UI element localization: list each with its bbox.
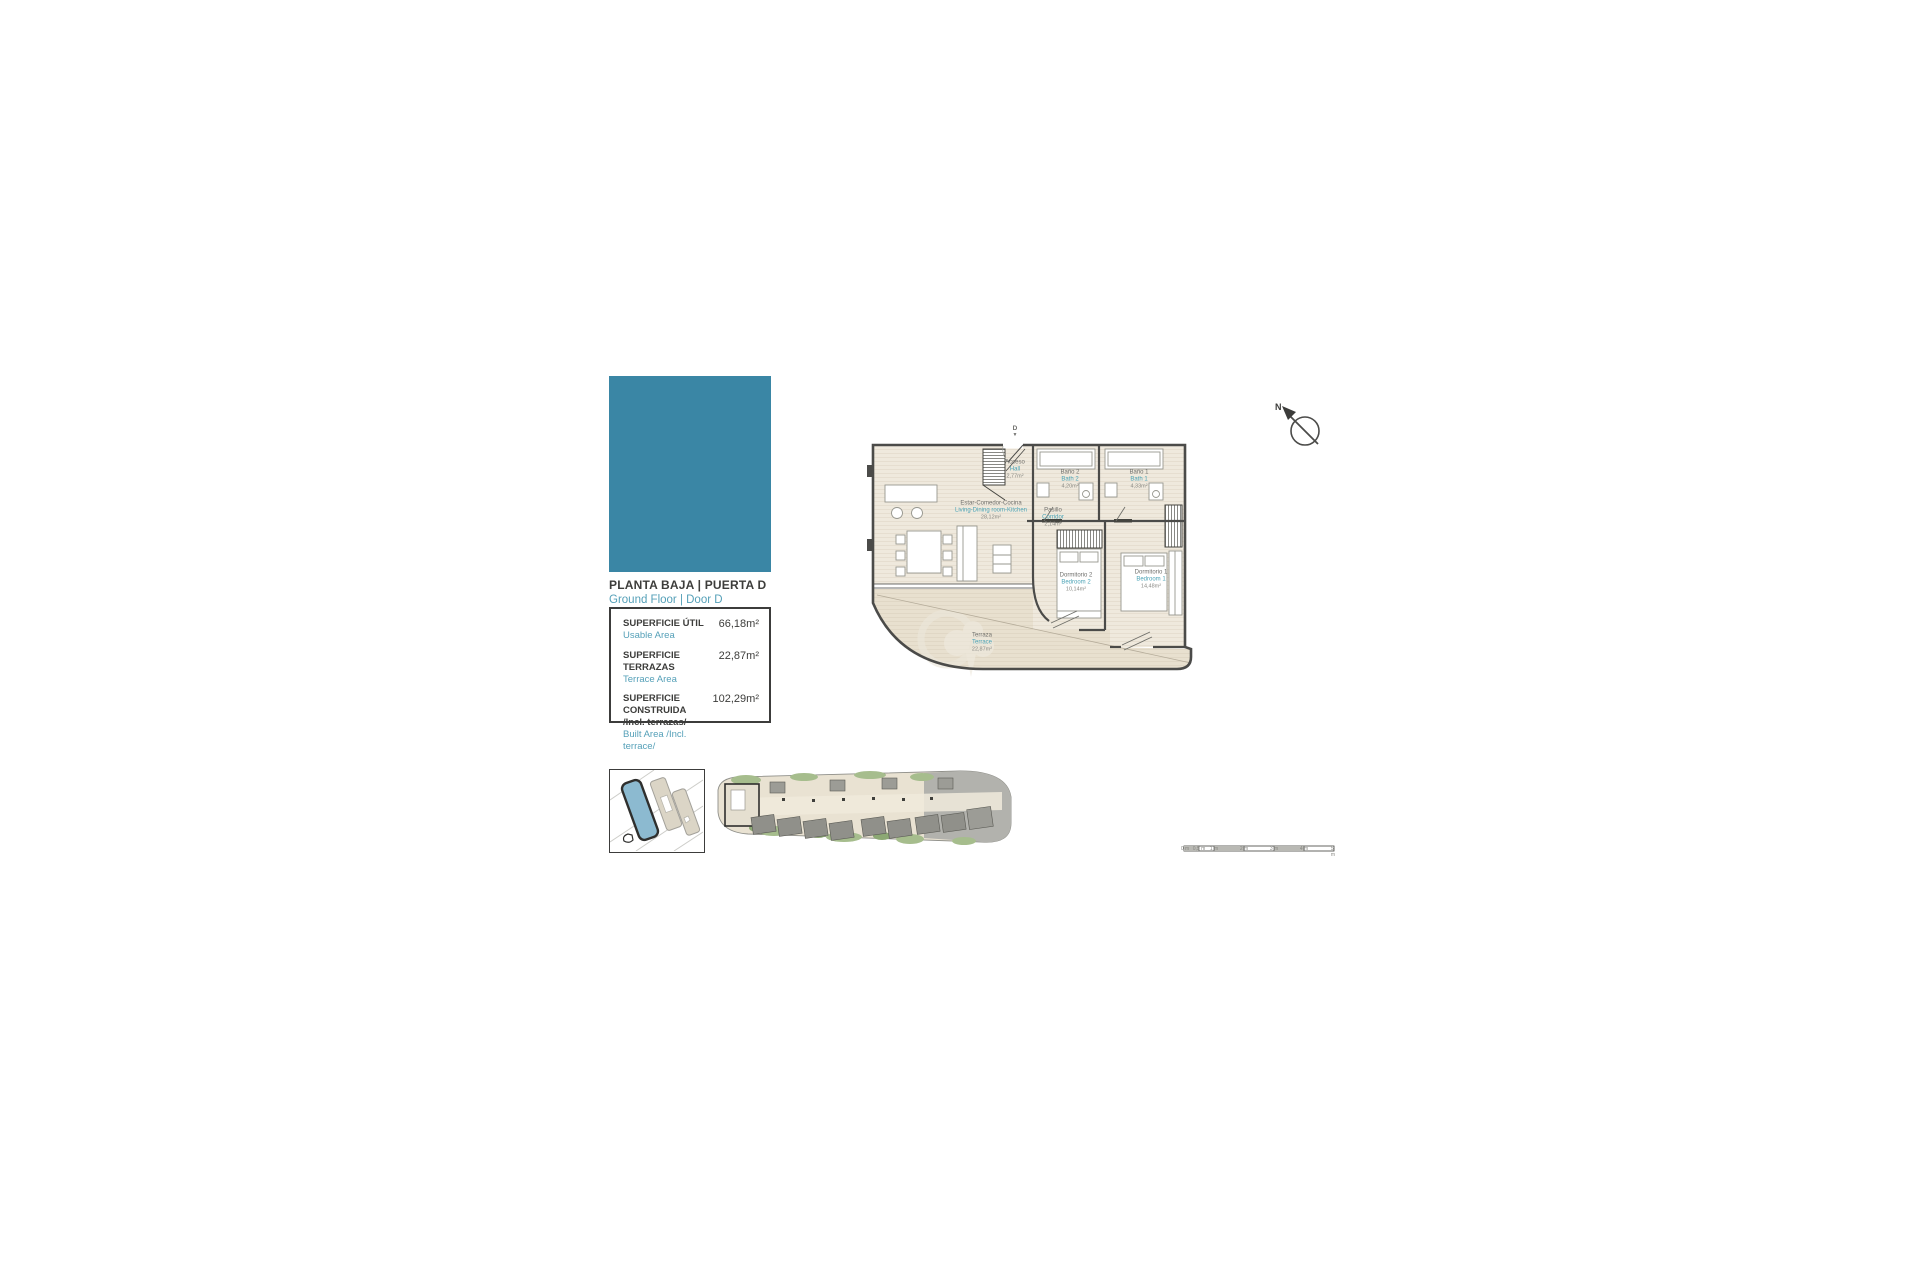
area-value: 102,29m² xyxy=(709,693,759,752)
area-label-es: SUPERFICIE TERRAZAS xyxy=(623,650,715,674)
floor-plan: D ▼ Acceso Hall 2,77m² Baño 2 Bath 2 4,2… xyxy=(865,425,1195,690)
compass-icon: N xyxy=(1272,396,1332,456)
room-name-en: Bedroom 1 xyxy=(1135,577,1168,584)
room-area: 4,33m² xyxy=(1129,484,1148,490)
room-area: 22,87m² xyxy=(972,647,992,653)
compass-north-label: N xyxy=(1275,402,1282,412)
room-name-en: Living-Dining room-Kitchen xyxy=(955,508,1027,515)
scale-tick-label: 5 m xyxy=(1331,846,1335,858)
terrace-glazing xyxy=(873,584,1033,588)
area-label-en: Usable Area xyxy=(623,630,704,642)
scale-tick-label: 4 m xyxy=(1300,846,1308,852)
area-row-usable: SUPERFICIE ÚTIL Usable Area 66,18m² xyxy=(623,618,759,642)
surface-areas-box: SUPERFICIE ÚTIL Usable Area 66,18m² SUPE… xyxy=(609,607,771,723)
entrance-marker: D ▼ xyxy=(1013,426,1018,438)
scale-tick-label: 1 m xyxy=(1210,846,1218,852)
area-value: 22,87m² xyxy=(715,650,759,686)
room-name-es: Pasillo xyxy=(1042,508,1064,515)
room-name-en: Corridor xyxy=(1042,515,1064,522)
room-area: 10,14m² xyxy=(1060,587,1093,593)
area-label-en: Terrace Area xyxy=(623,674,715,686)
room-area: 2,77m² xyxy=(1005,474,1025,480)
room-label-bedroom1: Dormitorio 1 Bedroom 1 14,48m² xyxy=(1135,570,1168,591)
brand-color-block xyxy=(609,376,771,572)
area-row-terrace: SUPERFICIE TERRAZAS Terrace Area 22,87m² xyxy=(623,650,759,686)
room-name-en: Hall xyxy=(1005,467,1025,474)
room-name-es: Terraza xyxy=(972,633,992,640)
room-name-es: Acceso xyxy=(1005,460,1025,467)
scale-tick-label: 0 m xyxy=(1181,846,1189,852)
room-name-en: Terrace xyxy=(972,640,992,647)
room-label-living: Estar-Comedor-Cocina Living-Dining room-… xyxy=(955,501,1027,522)
room-name-en: Bedroom 2 xyxy=(1060,580,1093,587)
room-name-en: Bath 2 xyxy=(1060,477,1079,484)
area-row-built: SUPERFICIE CONSTRUIDA /Incl. terrazas/ B… xyxy=(623,693,759,752)
key-plan xyxy=(609,769,705,853)
wall-pillar xyxy=(867,539,874,551)
room-area: 4,20m² xyxy=(1060,484,1079,490)
room-area: 2,14m² xyxy=(1042,522,1064,528)
area-value: 66,18m² xyxy=(715,618,759,642)
room-name-es: Estar-Comedor-Cocina xyxy=(955,501,1027,508)
key-plan-drawing xyxy=(610,770,703,851)
area-label-en: Built Area /Incl. terrace/ xyxy=(623,729,709,753)
wall-pillar xyxy=(867,465,874,477)
room-area: 14,48m² xyxy=(1135,584,1168,590)
area-label-es2: /Incl. terrazas/ xyxy=(623,717,709,729)
entrance-arrow-icon: ▼ xyxy=(1013,433,1018,438)
scale-bar: 0 m 0,5 m 1 m 2 m 3 m 4 m 5 m xyxy=(1183,839,1335,855)
room-label-bedroom2: Dormitorio 2 Bedroom 2 10,14m² xyxy=(1060,573,1093,594)
north-compass: N xyxy=(1272,396,1332,456)
room-area: 28,12m² xyxy=(955,515,1027,521)
room-name-en: Bath 1 xyxy=(1129,477,1148,484)
site-plan-drawing xyxy=(712,768,1018,854)
brochure-page: PLANTA BAJA | PUERTA D Ground Floor | Do… xyxy=(0,0,1920,1280)
room-label-corridor: Pasillo Corridor 2,14m² xyxy=(1042,508,1064,529)
scale-tick-label: 0,5 m xyxy=(1193,846,1206,852)
area-label-es: SUPERFICIE ÚTIL xyxy=(623,618,704,630)
room-label-hall: Acceso Hall 2,77m² xyxy=(1005,460,1025,481)
room-name-es: Baño 1 xyxy=(1129,470,1148,477)
room-name-es: Dormitorio 1 xyxy=(1135,570,1168,577)
room-label-bath2: Baño 2 Bath 2 4,20m² xyxy=(1060,470,1079,491)
room-label-bath1: Baño 1 Bath 1 4,33m² xyxy=(1129,470,1148,491)
page-title: PLANTA BAJA | PUERTA D Ground Floor | Do… xyxy=(609,578,869,606)
room-name-es: Dormitorio 2 xyxy=(1060,573,1093,580)
page-title-es: PLANTA BAJA | PUERTA D xyxy=(609,578,869,592)
scale-tick-label: 3 m xyxy=(1270,846,1278,852)
room-name-es: Baño 2 xyxy=(1060,470,1079,477)
page-title-en: Ground Floor | Door D xyxy=(609,594,869,606)
scale-tick-label: 2 m xyxy=(1240,846,1248,852)
room-label-terrace: Terraza Terrace 22,87m² xyxy=(972,633,992,654)
site-plan-overview xyxy=(712,768,1018,854)
area-label-es: SUPERFICIE CONSTRUIDA xyxy=(623,693,709,717)
scale-bar-graphic xyxy=(1183,845,1335,852)
floor-plan-drawing xyxy=(865,425,1195,690)
